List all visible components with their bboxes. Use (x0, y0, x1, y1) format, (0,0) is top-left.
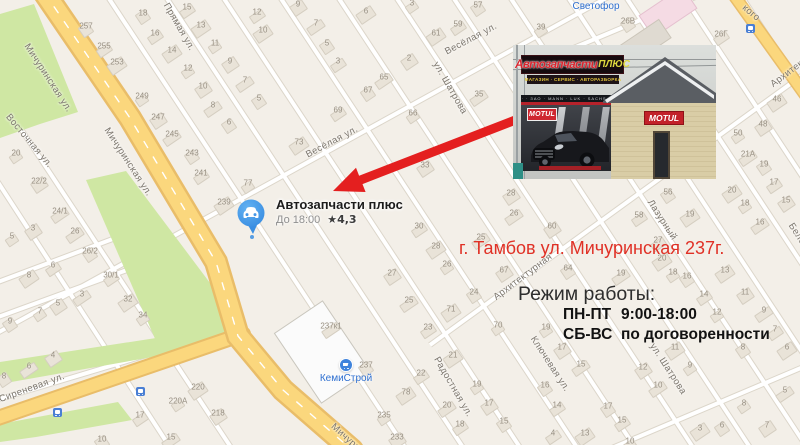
building-number: 28 (432, 242, 441, 251)
shop-pin[interactable] (231, 194, 271, 244)
building-number: 11 (741, 288, 749, 297)
building-number: 50 (734, 129, 743, 138)
building-number: 7 (243, 76, 247, 85)
building-number: 10 (98, 435, 107, 444)
building-number: 13 (197, 21, 206, 30)
building-number: 6 (51, 261, 55, 270)
building-number: 235 (377, 411, 390, 420)
building-number: 67 (500, 266, 509, 275)
building-number: 77 (244, 179, 253, 188)
place-hours-rating: До 18:00 ★4,3 (276, 213, 403, 226)
building-number: 8 (742, 399, 746, 408)
building-number: 3 (336, 57, 340, 66)
building-number: 21 (449, 351, 458, 360)
building-number: 14 (553, 401, 562, 410)
building-number: 247 (151, 113, 164, 122)
building-number: 19 (542, 323, 551, 332)
building-number: 12 (253, 8, 262, 17)
building-number: 10 (199, 82, 208, 91)
building-number: 6 (720, 421, 724, 430)
building-number: 10 (654, 381, 663, 390)
building-number: 16 (541, 381, 550, 390)
place-hours: До 18:00 (276, 214, 320, 226)
building-number: 9 (296, 0, 300, 9)
building-number: 22 (417, 369, 426, 378)
building-number: 233 (390, 433, 403, 442)
building-number: 13 (581, 429, 590, 438)
building-number: 28 (507, 189, 516, 198)
building-number: 9 (8, 317, 12, 326)
teal-bin (513, 163, 523, 179)
building-number: 243 (185, 149, 198, 158)
building-number: 19 (473, 380, 482, 389)
building-number: 78 (402, 388, 411, 397)
building-number: 18 (669, 268, 678, 277)
building-number: 15 (782, 196, 791, 205)
building-number: 27 (388, 269, 397, 278)
building-number: 48 (759, 120, 768, 129)
building-number: 9 (762, 306, 766, 315)
storefront-photo: АвтозапчастиПЛЮС МАГАЗИН · СЕРВИС · АВТО… (513, 45, 716, 179)
place-title[interactable]: Автозапчасти плюс (276, 197, 403, 212)
building-number: 12 (639, 363, 648, 372)
building-number: 60 (548, 222, 557, 231)
star-icon: ★ (327, 213, 337, 226)
building-number: 18 (456, 420, 465, 429)
motul-wall-sign: MOTUL (644, 111, 684, 125)
building-number: 10 (259, 26, 268, 35)
building-number: 8 (27, 271, 31, 280)
schedule-weekdays: ПН-ПТ9:00-18:00 (563, 306, 697, 324)
brand-logos-row: · · ЗАО · MANN · LUK · SACHS · · (521, 95, 616, 102)
building-number: 255 (97, 42, 110, 51)
building-number: 15 (183, 3, 192, 12)
building-number: 64 (564, 264, 573, 273)
building-number: 32 (124, 295, 133, 304)
building-number: 69 (334, 106, 343, 115)
shop-door (653, 131, 670, 179)
building-number: 7 (38, 307, 42, 316)
building-number: 26В (621, 17, 635, 26)
building-number: 9 (688, 361, 692, 370)
bus-stop-icon[interactable] (746, 24, 755, 33)
car-photo (525, 126, 611, 168)
building-number: 15 (167, 433, 176, 442)
building-number: 7 (314, 19, 318, 28)
building-number: 58 (635, 211, 644, 220)
building-number: 35 (475, 90, 484, 99)
kemistroy-cart-icon[interactable] (339, 358, 353, 372)
banner-footer (539, 166, 601, 170)
building-number: 16 (756, 218, 765, 227)
bus-stop-icon[interactable] (136, 387, 145, 396)
building-number: 67 (364, 86, 373, 95)
building-number: 5 (783, 386, 787, 395)
building-number: 19 (617, 269, 626, 278)
building-number: 3 (31, 224, 35, 233)
building-number: 17 (485, 399, 494, 408)
building-number: 18 (741, 199, 750, 208)
building-number: 56 (664, 188, 673, 197)
building-number: 218 (211, 409, 224, 418)
building-number: 20 (12, 149, 21, 158)
banner-stripe (521, 102, 616, 105)
building-number: 18 (139, 9, 148, 18)
building-number: 59 (454, 20, 463, 29)
building-number: 73 (295, 138, 304, 147)
building-number: 6 (364, 7, 368, 16)
building-number: 61 (432, 29, 441, 38)
building-number: 15 (618, 416, 627, 425)
building-number: 6 (27, 362, 31, 371)
building-number: 5 (325, 39, 329, 48)
building-number: 30/1 (103, 271, 119, 280)
building-number: 8 (211, 101, 215, 110)
building-number: 220А (169, 397, 188, 406)
building-number: 4 (551, 429, 555, 438)
building-number: 20 (728, 186, 737, 195)
building-number: 30 (415, 222, 424, 231)
building-number: 3 (410, 0, 414, 8)
building-number: 7 (773, 325, 777, 334)
place-card[interactable]: Автозапчасти плюс До 18:00 ★4,3 (276, 197, 403, 226)
building-number: 239 (217, 198, 230, 207)
address-text: г. Тамбов ул. Мичуринская 237г. (459, 238, 724, 259)
building-number: 46 (773, 95, 782, 104)
building-number: 26/2 (82, 247, 98, 256)
building-number: 26 (443, 260, 452, 269)
building-number: 17 (604, 402, 613, 411)
shop-sign-title: Автозапчасти (515, 59, 597, 71)
building-number: 8 (2, 372, 6, 381)
building-number: 220 (191, 383, 204, 392)
building-number: 17 (770, 178, 779, 187)
building-number: 237 (359, 361, 372, 370)
building-number: 7 (765, 421, 769, 430)
building-number: 253 (110, 58, 123, 67)
building-number: 65 (380, 73, 389, 82)
building-number: 23 (424, 323, 433, 332)
building-number: 14 (700, 290, 709, 299)
building-number: 16 (151, 29, 160, 38)
building-number: 16 (683, 272, 692, 281)
building-number: 24/1 (52, 207, 68, 216)
building-number: 21А (741, 150, 755, 159)
building-number: 249 (135, 92, 148, 101)
building-number: 14 (168, 46, 177, 55)
place-rating: 4,3 (337, 213, 357, 226)
building-number: 19 (760, 160, 769, 169)
building-number: 24 (470, 288, 479, 297)
building-number: 6 (227, 118, 231, 127)
building-number: 257 (79, 22, 92, 31)
building-number: 3 (80, 290, 84, 299)
building-number: 3 (698, 424, 702, 433)
building-number: 15 (577, 360, 586, 369)
building-number: 9 (228, 57, 232, 66)
building-number: 13 (721, 266, 730, 275)
schedule-weekend: СБ-ВСпо договоренности (563, 326, 770, 344)
building-number: 25 (405, 296, 414, 305)
building-number: 26 (510, 209, 519, 218)
map-screenshot: 2572552532492472452432412392022/224/1181… (0, 0, 800, 445)
building-number: 71 (447, 305, 456, 314)
building-number: 6 (785, 343, 789, 352)
building-number: 33 (421, 161, 430, 170)
shop-roof (603, 53, 716, 103)
building-number: 5 (10, 232, 14, 241)
building-number: 10 (626, 437, 635, 445)
building-number: 12 (713, 308, 722, 317)
building-number: 15 (500, 417, 509, 426)
building-number: 12 (184, 64, 193, 73)
building-number: 39 (537, 23, 546, 32)
schedule-title: Режим работы: (518, 283, 655, 306)
poi-svetofor[interactable]: Светофор (572, 1, 619, 12)
building-number: 66 (409, 109, 418, 118)
building-number: 22/2 (31, 177, 47, 186)
building-number: 57 (474, 1, 483, 10)
building-number: 70 (494, 321, 503, 330)
building-number: 26 (71, 227, 80, 236)
building-number: 245 (165, 130, 178, 139)
building-number: 237к1 (320, 322, 341, 331)
ad-banner: · · ЗАО · MANN · LUK · SACHS · · MOTUL (521, 95, 616, 171)
building-number: 17 (136, 411, 145, 420)
building-number: 20 (443, 401, 452, 410)
building-number: 19 (686, 210, 695, 219)
motul-logo: MOTUL (527, 108, 557, 121)
poi-kemistroy[interactable]: КемиСтрой (320, 373, 372, 384)
building-number: 4 (51, 351, 55, 360)
bus-stop-icon[interactable] (53, 408, 62, 417)
building-number: 5 (257, 94, 261, 103)
building-number: 241 (194, 169, 207, 178)
building-number: 2 (407, 54, 411, 63)
building-number: 11 (211, 39, 219, 48)
building-number: 26Г (714, 30, 727, 39)
building-number: 5 (56, 299, 60, 308)
building-number: 34 (139, 311, 148, 320)
